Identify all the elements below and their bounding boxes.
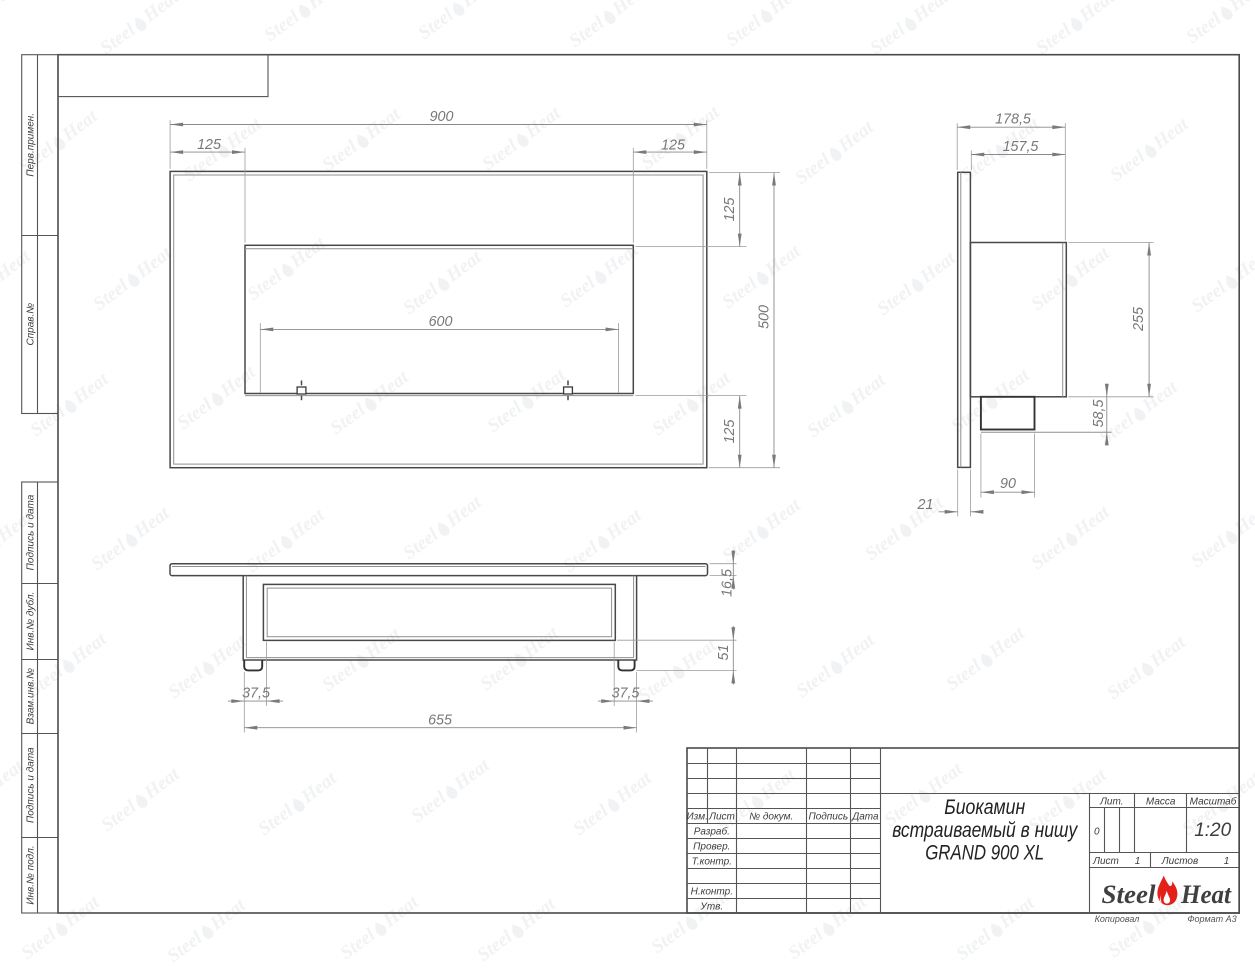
svg-text:125: 125 — [722, 420, 738, 444]
svg-text:Лит.: Лит. — [1099, 797, 1123, 808]
svg-text:51: 51 — [716, 645, 732, 661]
svg-text:Инв.№ подл.: Инв.№ подл. — [26, 845, 37, 904]
svg-text:1: 1 — [1224, 856, 1230, 867]
svg-text:Копировал: Копировал — [1095, 914, 1140, 924]
svg-text:Steel: Steel — [1102, 880, 1157, 909]
svg-text:600: 600 — [429, 314, 453, 330]
svg-text:125: 125 — [722, 198, 738, 222]
svg-text:GRAND 900 XL: GRAND 900 XL — [925, 842, 1044, 865]
svg-text:№ докум.: № докум. — [749, 812, 793, 823]
svg-text:125: 125 — [661, 138, 685, 154]
svg-text:Н.контр.: Н.контр. — [691, 887, 733, 898]
svg-text:Провер.: Провер. — [693, 842, 730, 853]
svg-text:Heat: Heat — [1180, 880, 1232, 909]
svg-text:Подпись: Подпись — [808, 812, 848, 823]
svg-text:0: 0 — [1094, 827, 1100, 838]
svg-text:Лист: Лист — [708, 812, 735, 823]
svg-text:655: 655 — [428, 713, 452, 729]
svg-text:Изм.: Изм. — [687, 812, 708, 823]
svg-text:500: 500 — [756, 305, 772, 329]
svg-text:58,5: 58,5 — [1091, 400, 1107, 428]
svg-text:1: 1 — [1135, 856, 1141, 867]
svg-text:900: 900 — [430, 109, 454, 125]
svg-text:16,5: 16,5 — [720, 569, 736, 597]
svg-text:178,5: 178,5 — [995, 112, 1031, 128]
svg-text:90: 90 — [1000, 476, 1016, 492]
svg-text:Разраб.: Разраб. — [694, 826, 730, 838]
svg-text:Подпись и дата: Подпись и дата — [26, 494, 37, 570]
svg-text:Масштаб: Масштаб — [1190, 796, 1237, 808]
svg-text:Масса: Масса — [1146, 797, 1176, 808]
svg-text:125: 125 — [197, 137, 221, 153]
svg-text:Листов: Листов — [1161, 856, 1198, 867]
svg-text:157,5: 157,5 — [1003, 139, 1039, 155]
svg-text:37,5: 37,5 — [242, 686, 270, 702]
svg-text:Дата: Дата — [851, 812, 879, 823]
svg-text:Биокамин: Биокамин — [944, 796, 1025, 819]
svg-text:Перв.примен.: Перв.примен. — [26, 113, 37, 177]
svg-text:Инв.№ дубл.: Инв.№ дубл. — [25, 592, 37, 651]
svg-text:Т.контр.: Т.контр. — [692, 857, 732, 868]
svg-text:встраиваемый в нишу: встраиваемый в нишу — [892, 819, 1078, 842]
svg-text:Подпись и дата: Подпись и дата — [26, 747, 37, 823]
svg-text:Лист: Лист — [1092, 856, 1119, 867]
svg-text:Формат А3: Формат А3 — [1187, 914, 1236, 924]
svg-text:37,5: 37,5 — [612, 686, 640, 702]
svg-text:255: 255 — [1131, 307, 1147, 332]
svg-text:Утв.: Утв. — [699, 902, 723, 913]
svg-text:21: 21 — [917, 497, 934, 513]
svg-text:Справ.№: Справ.№ — [26, 303, 37, 346]
svg-text:Взам.инв.№: Взам.инв.№ — [26, 668, 37, 724]
svg-text:1:20: 1:20 — [1194, 820, 1231, 841]
